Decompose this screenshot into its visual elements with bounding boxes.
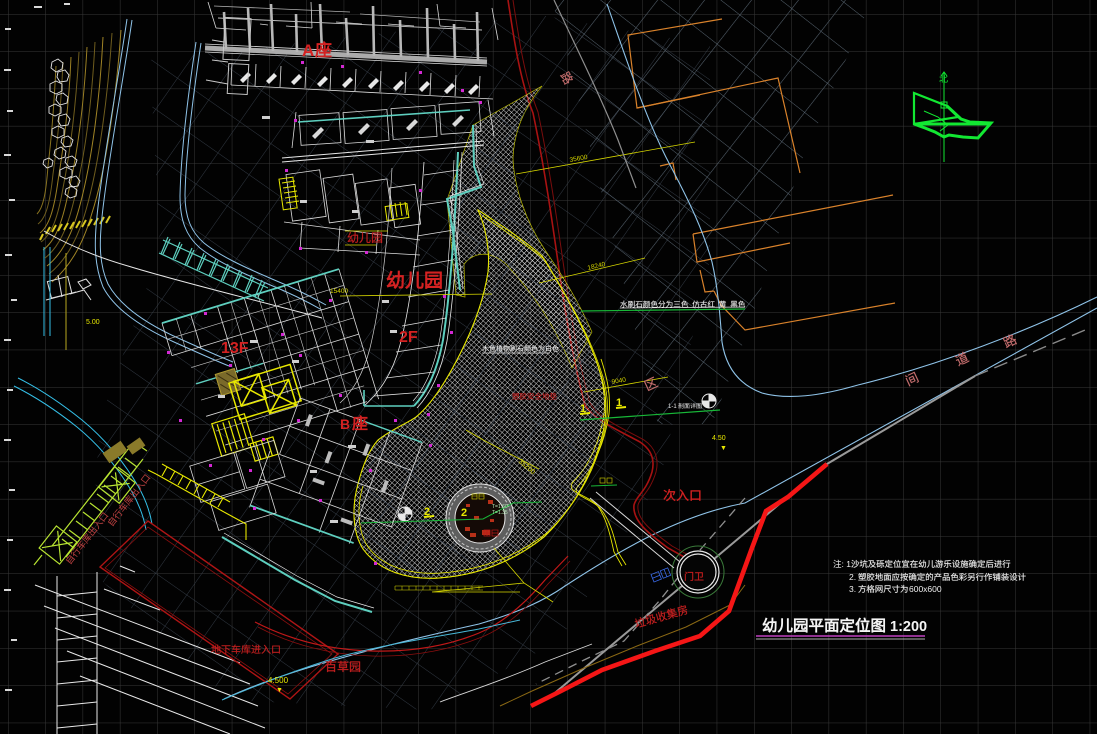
svg-text:4.50: 4.50 [712, 435, 726, 442]
svg-text:B: B [340, 416, 350, 432]
svg-text:1-1: 1-1 [668, 404, 677, 410]
svg-text:600x600: 600x600 [909, 584, 942, 594]
svg-text:1:200: 1:200 [890, 619, 927, 635]
svg-text:2: 2 [461, 507, 467, 519]
svg-text:5.00: 5.00 [86, 319, 100, 326]
svg-text:13F: 13F [221, 340, 249, 357]
svg-text:15400: 15400 [330, 288, 348, 295]
svg-text:3.: 3. [849, 584, 856, 594]
svg-text:2F: 2F [399, 329, 418, 346]
svg-text:A: A [302, 41, 314, 60]
svg-text:注: 1.: 注: 1. [833, 559, 853, 569]
svg-text:4.500: 4.500 [268, 676, 289, 685]
svg-text:2.: 2. [849, 572, 856, 582]
svg-text:T=1.35: T=1.35 [492, 510, 508, 516]
svg-text:▼: ▼ [276, 687, 283, 694]
svg-text:▼: ▼ [720, 445, 727, 452]
